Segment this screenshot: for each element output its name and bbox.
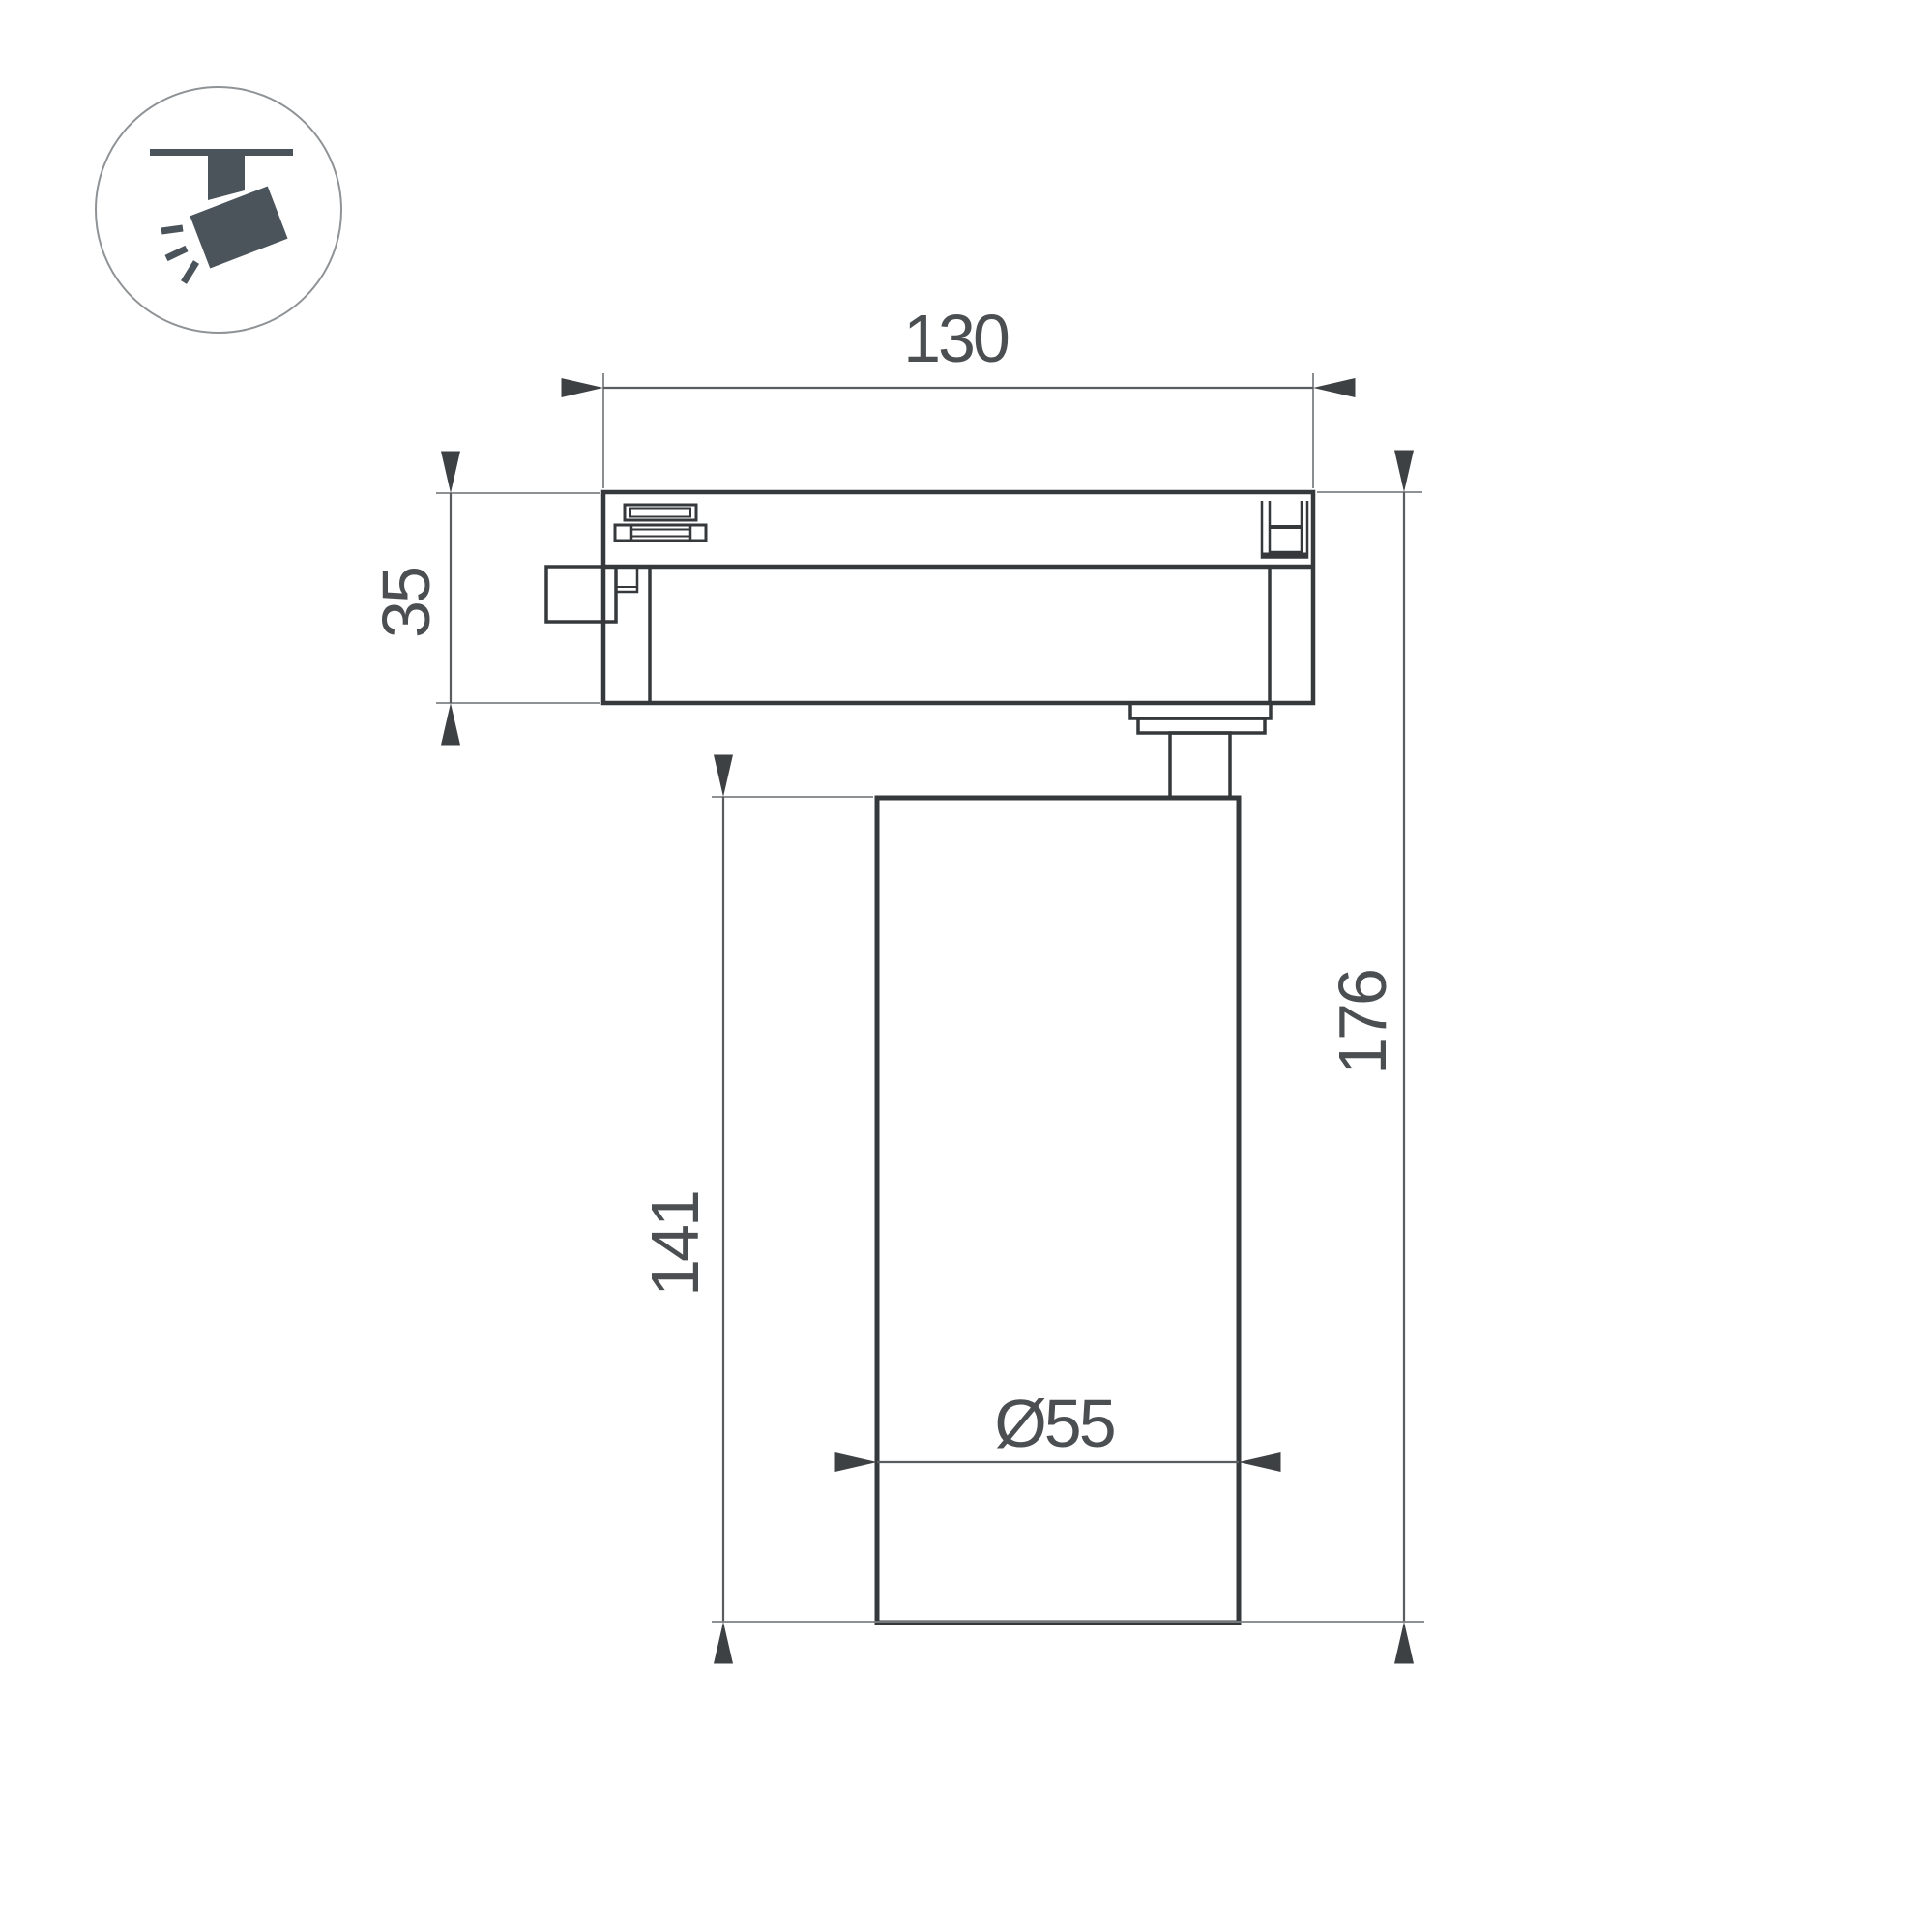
drawing-canvas: 130 35 141 176 Ø55 <box>0 0 1932 1932</box>
lamp-cylinder <box>877 798 1239 1623</box>
contact-bar-lower <box>615 525 706 541</box>
icon-track-bar <box>150 149 293 156</box>
track-adapter <box>546 492 1313 703</box>
contact-bar-upper <box>625 505 696 520</box>
dimension-label-track-width: 130 <box>903 301 1009 376</box>
technical-drawing: 130 35 141 176 Ø55 <box>0 0 1932 1932</box>
dimension-label-body-height: 141 <box>637 1192 713 1297</box>
dimension-adapter-height: 35 <box>368 493 600 703</box>
dimension-total-height: 176 <box>1317 492 1422 1622</box>
lamp-body <box>877 703 1271 1623</box>
dimension-label-total-height: 176 <box>1325 971 1400 1075</box>
dimension-track-width: 130 <box>603 301 1313 488</box>
track-spotlight-icon <box>96 87 341 333</box>
dimension-body-height: 141 <box>637 797 873 1622</box>
dimension-label-body-diameter: Ø55 <box>994 1386 1113 1461</box>
joint-flange-upper <box>1130 703 1271 718</box>
dimension-label-adapter-height: 35 <box>368 569 444 638</box>
adapter-lock-notch <box>616 567 637 592</box>
contact-bar-upper-inner <box>630 509 690 517</box>
adapter-housing-outline <box>603 492 1313 703</box>
dimension-body-diameter: Ø55 <box>877 1386 1239 1462</box>
icon-light-ray <box>161 228 183 231</box>
joint-flange-lower <box>1138 718 1265 733</box>
joint-stem <box>1170 733 1230 798</box>
